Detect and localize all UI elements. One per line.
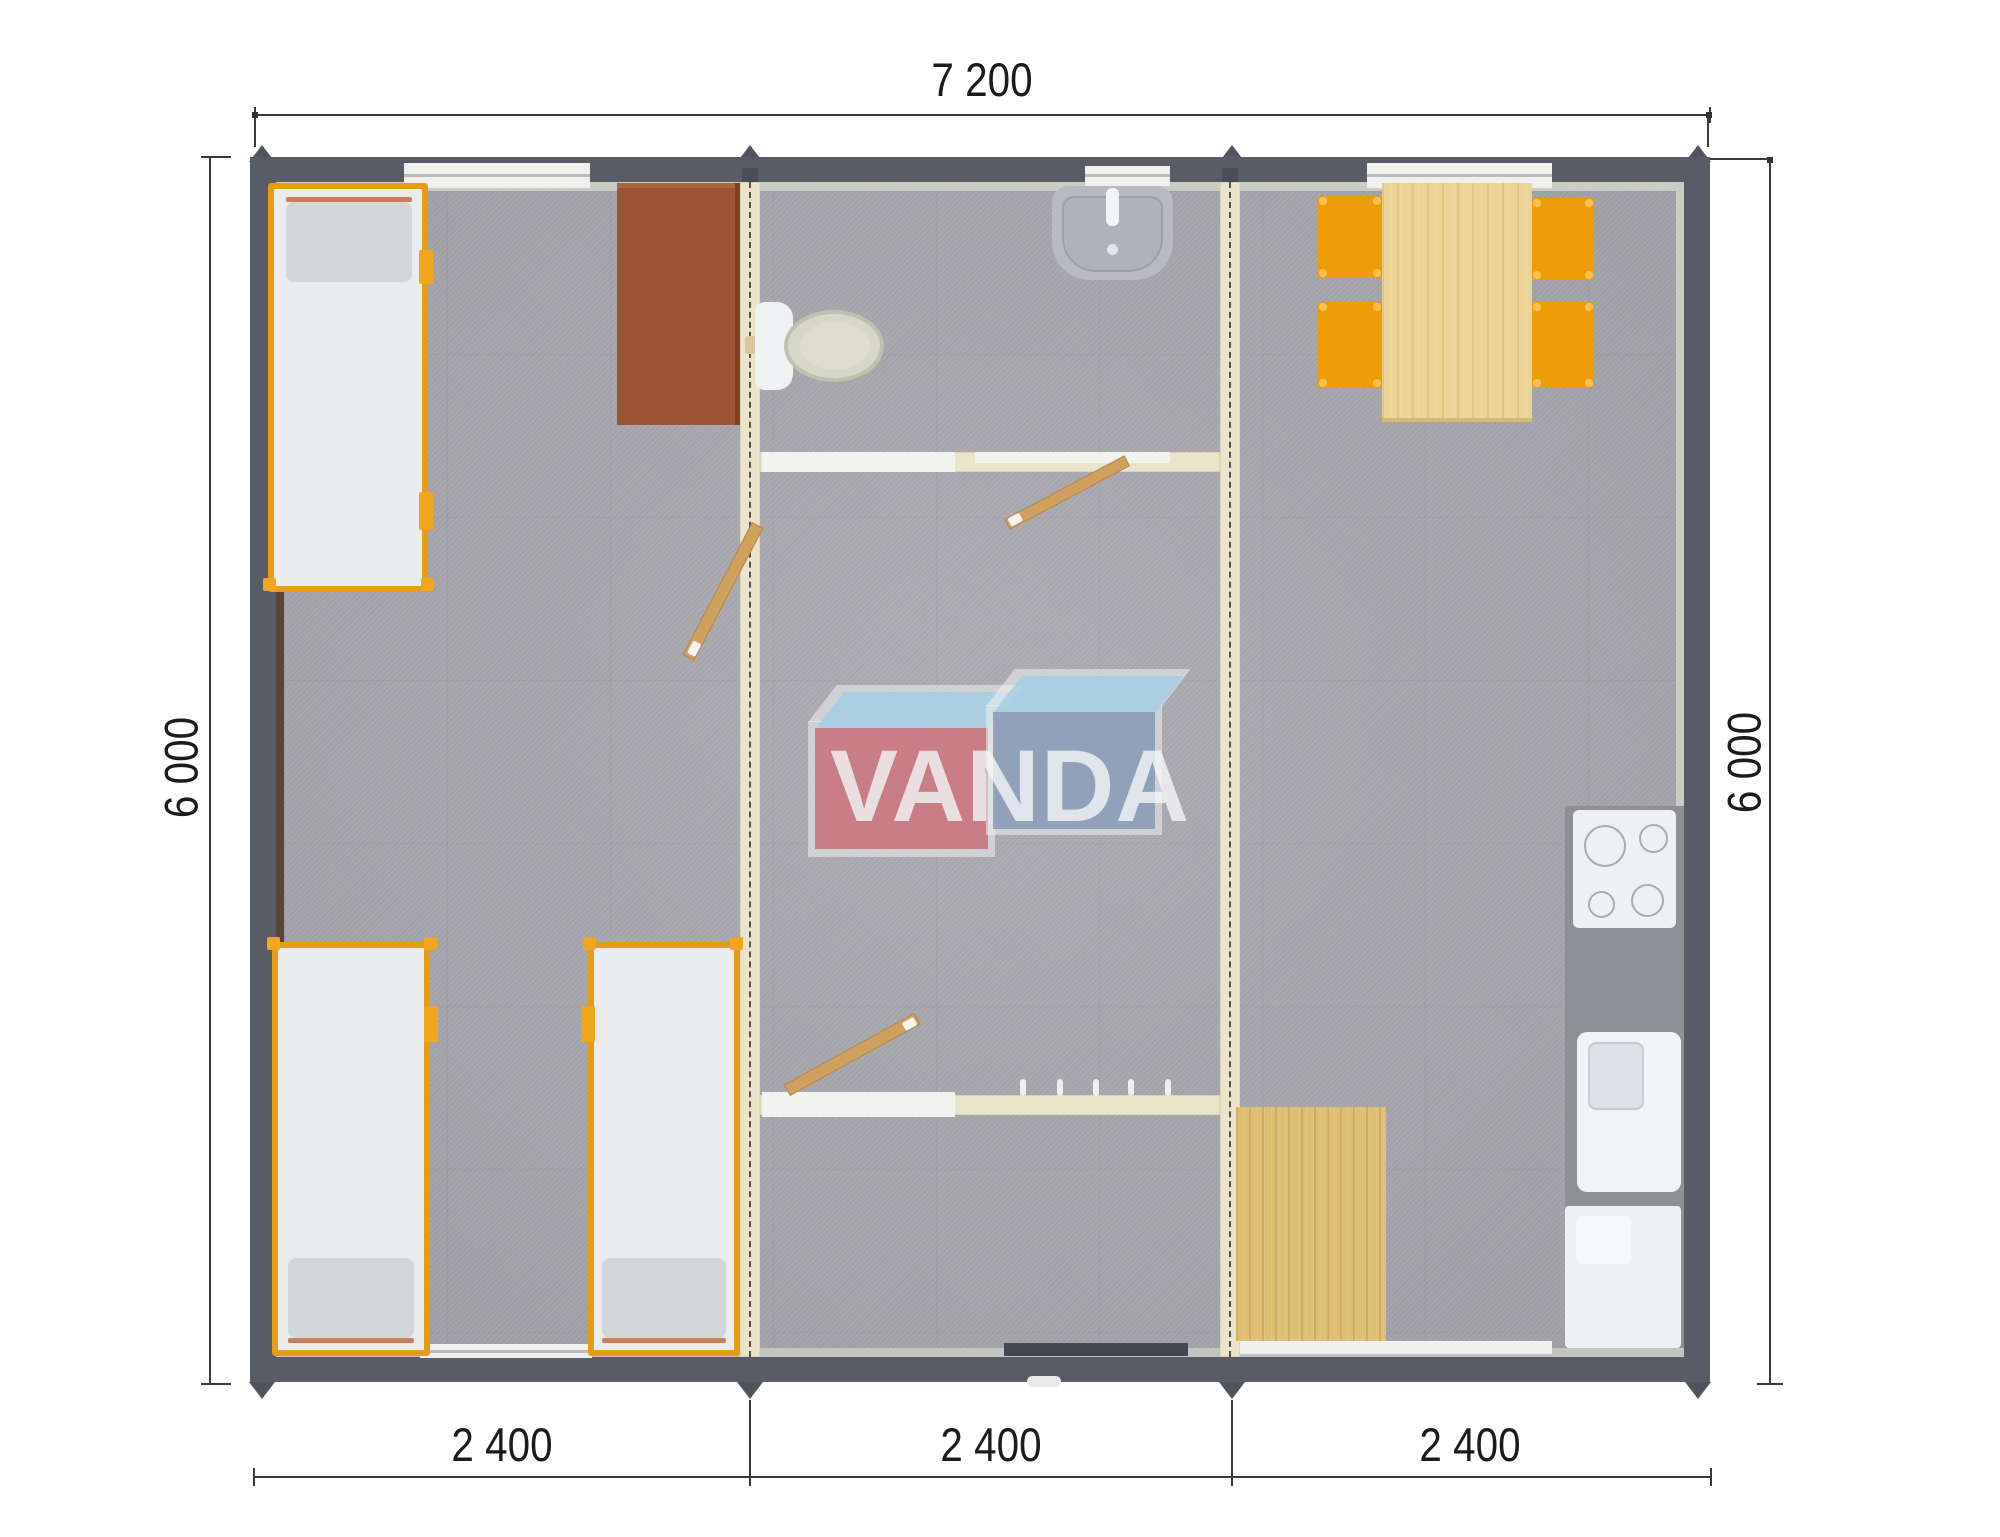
extension-line bbox=[1231, 1400, 1233, 1486]
bed-post bbox=[583, 937, 596, 950]
pillow-trim bbox=[602, 1338, 726, 1343]
sink-faucet bbox=[1106, 188, 1119, 226]
wall-right bbox=[1684, 157, 1710, 1382]
bed-post bbox=[730, 937, 743, 950]
stove-burner bbox=[1584, 825, 1626, 867]
bathroom-door-threshold-right bbox=[975, 452, 1170, 463]
bed-post bbox=[267, 937, 280, 950]
coat-hook bbox=[1128, 1079, 1134, 1096]
vanda-logo: VANDA bbox=[800, 655, 1200, 855]
bed-post bbox=[424, 1006, 438, 1042]
bed-post bbox=[263, 578, 276, 591]
dimension-tick bbox=[201, 1383, 231, 1385]
coat-hook bbox=[1020, 1079, 1026, 1096]
dimension-node bbox=[1706, 112, 1712, 118]
window-bottom-right bbox=[1236, 1341, 1552, 1354]
dimension-tick bbox=[1710, 1468, 1712, 1486]
joint-marker bbox=[1219, 1382, 1245, 1399]
dimension-tick bbox=[253, 1468, 255, 1486]
dining-table bbox=[1382, 183, 1532, 422]
logo-wordmark: VANDA bbox=[830, 735, 1170, 837]
bed-post bbox=[419, 492, 433, 530]
coat-hook bbox=[1057, 1079, 1063, 1096]
dimension-label-module-1: 2 400 bbox=[373, 1421, 631, 1468]
dimension-line-bottom bbox=[254, 1476, 1712, 1478]
bathroom-door-threshold-left bbox=[762, 452, 955, 472]
pillow-trim bbox=[288, 1338, 414, 1343]
floor-plan-canvas: 7 200 6 000 6 000 2 400 2 400 2 400 bbox=[0, 0, 2000, 1537]
pillow bbox=[602, 1258, 726, 1338]
dining-chair bbox=[1318, 302, 1382, 388]
dimension-tick bbox=[1757, 1383, 1783, 1385]
entrance-door-handle bbox=[1027, 1376, 1061, 1387]
dimension-label-height-right: 6 000 bbox=[1721, 634, 1768, 892]
hallway-door-threshold bbox=[762, 1092, 955, 1117]
kitchen-sink-basin bbox=[1588, 1042, 1644, 1110]
logo-blue-box-top bbox=[993, 676, 1184, 713]
dimension-label-module-2: 2 400 bbox=[862, 1421, 1120, 1468]
joint-marker bbox=[1685, 1382, 1711, 1399]
entrance-door-track bbox=[1004, 1343, 1188, 1356]
dimension-tick bbox=[201, 156, 231, 158]
dining-chair bbox=[1532, 302, 1594, 388]
dimension-line-left bbox=[209, 157, 211, 1384]
entry-mat bbox=[1236, 1107, 1386, 1341]
window-frame-line bbox=[420, 1350, 592, 1353]
partition-dash-line bbox=[749, 182, 751, 1357]
stove-burner bbox=[1631, 884, 1664, 917]
stove-burner bbox=[1639, 824, 1668, 853]
bed-post bbox=[421, 578, 434, 591]
window-frame-line bbox=[404, 174, 590, 177]
dimension-line-top bbox=[255, 114, 1711, 116]
joint-marker bbox=[737, 1382, 763, 1399]
bed-post bbox=[581, 1006, 595, 1042]
coat-hook bbox=[1165, 1079, 1171, 1096]
toilet-seat bbox=[800, 322, 870, 370]
extension-line bbox=[1707, 115, 1709, 147]
sink-drain bbox=[1107, 244, 1118, 255]
wardrobe-desk bbox=[617, 183, 740, 425]
stove-burner bbox=[1588, 891, 1615, 918]
bed-post bbox=[424, 937, 437, 950]
pillow bbox=[288, 1258, 414, 1338]
extension-line bbox=[254, 115, 256, 147]
fridge-detail bbox=[1576, 1216, 1631, 1264]
coat-hook bbox=[1093, 1079, 1099, 1096]
pillow bbox=[286, 202, 412, 282]
partition-joint bbox=[1222, 168, 1238, 182]
dining-chair bbox=[1318, 196, 1382, 278]
dimension-label-module-3: 2 400 bbox=[1341, 1421, 1599, 1468]
joint-marker bbox=[249, 1382, 275, 1399]
partition-joint bbox=[742, 168, 758, 182]
bed-post bbox=[419, 250, 433, 284]
window-frame-line bbox=[1367, 174, 1552, 177]
dimension-tick bbox=[1709, 158, 1771, 160]
dimension-label-height-left: 6 000 bbox=[158, 639, 205, 897]
dimension-label-total-width: 7 200 bbox=[853, 56, 1111, 103]
partition-dash-line bbox=[1229, 182, 1231, 1357]
dimension-node bbox=[1767, 157, 1773, 163]
window-frame-line bbox=[1085, 174, 1170, 177]
extension-line bbox=[749, 1400, 751, 1486]
wall-bottom bbox=[250, 1357, 1710, 1382]
dining-chair bbox=[1532, 198, 1594, 280]
dimension-node bbox=[252, 112, 258, 118]
